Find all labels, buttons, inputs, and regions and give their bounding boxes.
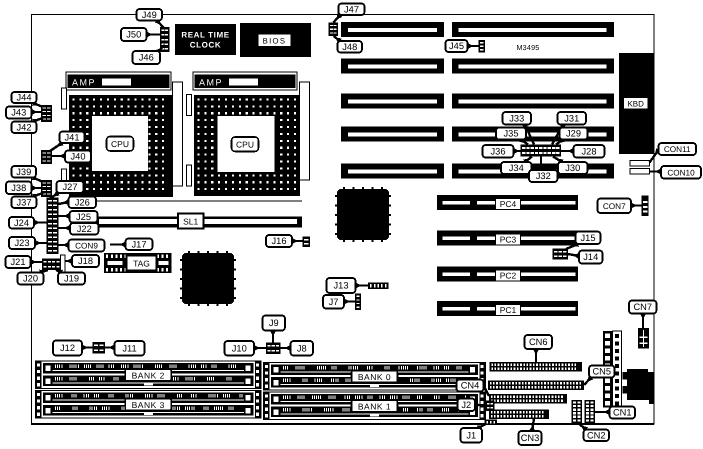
svg-text:J33: J33 bbox=[509, 113, 524, 123]
svg-text:CN1: CN1 bbox=[613, 408, 632, 418]
svg-text:PC2: PC2 bbox=[500, 271, 517, 281]
svg-text:J47: J47 bbox=[344, 4, 359, 14]
svg-text:J37: J37 bbox=[17, 197, 32, 207]
svg-text:J17: J17 bbox=[132, 239, 147, 249]
svg-text:J12: J12 bbox=[60, 343, 75, 353]
svg-text:J41: J41 bbox=[65, 132, 80, 142]
svg-text:J21: J21 bbox=[11, 257, 26, 267]
svg-text:J44: J44 bbox=[17, 93, 32, 103]
svg-text:CN5: CN5 bbox=[592, 367, 611, 377]
svg-text:J13: J13 bbox=[334, 281, 349, 291]
svg-text:TAG: TAG bbox=[133, 259, 150, 269]
svg-text:J34: J34 bbox=[509, 163, 524, 173]
svg-text:KBD: KBD bbox=[627, 99, 644, 108]
svg-text:J1: J1 bbox=[466, 430, 476, 440]
svg-text:AMP: AMP bbox=[199, 78, 223, 88]
svg-text:J2: J2 bbox=[461, 400, 471, 410]
svg-text:J43: J43 bbox=[11, 108, 26, 118]
svg-text:J35: J35 bbox=[504, 129, 519, 139]
svg-text:J48: J48 bbox=[342, 42, 357, 52]
svg-text:CLOCK: CLOCK bbox=[190, 41, 221, 50]
svg-text:J18: J18 bbox=[78, 256, 93, 266]
svg-text:PC3: PC3 bbox=[500, 235, 517, 245]
svg-text:CN4: CN4 bbox=[461, 381, 480, 391]
svg-text:J40: J40 bbox=[71, 152, 86, 162]
svg-text:AMP: AMP bbox=[72, 78, 96, 88]
svg-text:J25: J25 bbox=[76, 212, 91, 222]
svg-text:J28: J28 bbox=[582, 146, 597, 156]
svg-text:J10: J10 bbox=[232, 343, 247, 353]
svg-text:J27: J27 bbox=[63, 182, 78, 192]
svg-text:M3495: M3495 bbox=[517, 43, 540, 52]
svg-text:J11: J11 bbox=[122, 343, 136, 353]
svg-text:J9: J9 bbox=[269, 318, 279, 328]
svg-text:J19: J19 bbox=[64, 274, 79, 284]
svg-text:J50: J50 bbox=[126, 30, 141, 40]
svg-text:J7: J7 bbox=[329, 297, 339, 307]
svg-text:J22: J22 bbox=[77, 224, 92, 234]
svg-text:J36: J36 bbox=[491, 146, 506, 156]
svg-text:BANK 2: BANK 2 bbox=[132, 370, 165, 380]
svg-text:CN3: CN3 bbox=[521, 433, 540, 443]
svg-text:J39: J39 bbox=[16, 167, 31, 177]
svg-text:J32: J32 bbox=[536, 171, 551, 181]
svg-text:J23: J23 bbox=[15, 238, 30, 248]
svg-text:REAL TIME: REAL TIME bbox=[181, 31, 229, 40]
svg-text:J14: J14 bbox=[583, 252, 598, 262]
svg-text:CPU: CPU bbox=[236, 140, 254, 150]
svg-text:J20: J20 bbox=[23, 274, 38, 284]
svg-text:J15: J15 bbox=[581, 233, 596, 243]
svg-text:BANK 0: BANK 0 bbox=[358, 372, 391, 382]
svg-text:CON10: CON10 bbox=[667, 168, 695, 177]
svg-text:CN7: CN7 bbox=[633, 302, 652, 312]
svg-text:J49: J49 bbox=[142, 10, 157, 20]
svg-text:J38: J38 bbox=[11, 183, 26, 193]
svg-text:CPU: CPU bbox=[111, 139, 129, 149]
svg-text:J42: J42 bbox=[17, 122, 32, 132]
svg-text:PC4: PC4 bbox=[500, 199, 517, 209]
svg-text:PC1: PC1 bbox=[500, 305, 517, 315]
svg-text:CON11: CON11 bbox=[664, 145, 691, 154]
svg-text:J8: J8 bbox=[297, 343, 307, 353]
svg-text:CN6: CN6 bbox=[529, 337, 548, 347]
svg-text:J30: J30 bbox=[565, 163, 580, 173]
svg-text:SL1: SL1 bbox=[183, 217, 198, 227]
svg-text:CON9: CON9 bbox=[75, 242, 98, 251]
svg-text:J16: J16 bbox=[272, 236, 287, 246]
svg-text:BANK 3: BANK 3 bbox=[132, 400, 165, 410]
svg-text:J31: J31 bbox=[564, 113, 579, 123]
svg-text:J29: J29 bbox=[566, 129, 581, 139]
svg-text:CN2: CN2 bbox=[587, 430, 606, 440]
svg-text:J46: J46 bbox=[139, 53, 154, 63]
svg-text:BIOS: BIOS bbox=[263, 37, 287, 46]
svg-text:J24: J24 bbox=[14, 218, 29, 228]
svg-text:CON7: CON7 bbox=[603, 202, 626, 211]
svg-text:J45: J45 bbox=[449, 41, 464, 51]
svg-text:J26: J26 bbox=[75, 197, 90, 207]
svg-text:BANK 1: BANK 1 bbox=[358, 401, 391, 411]
